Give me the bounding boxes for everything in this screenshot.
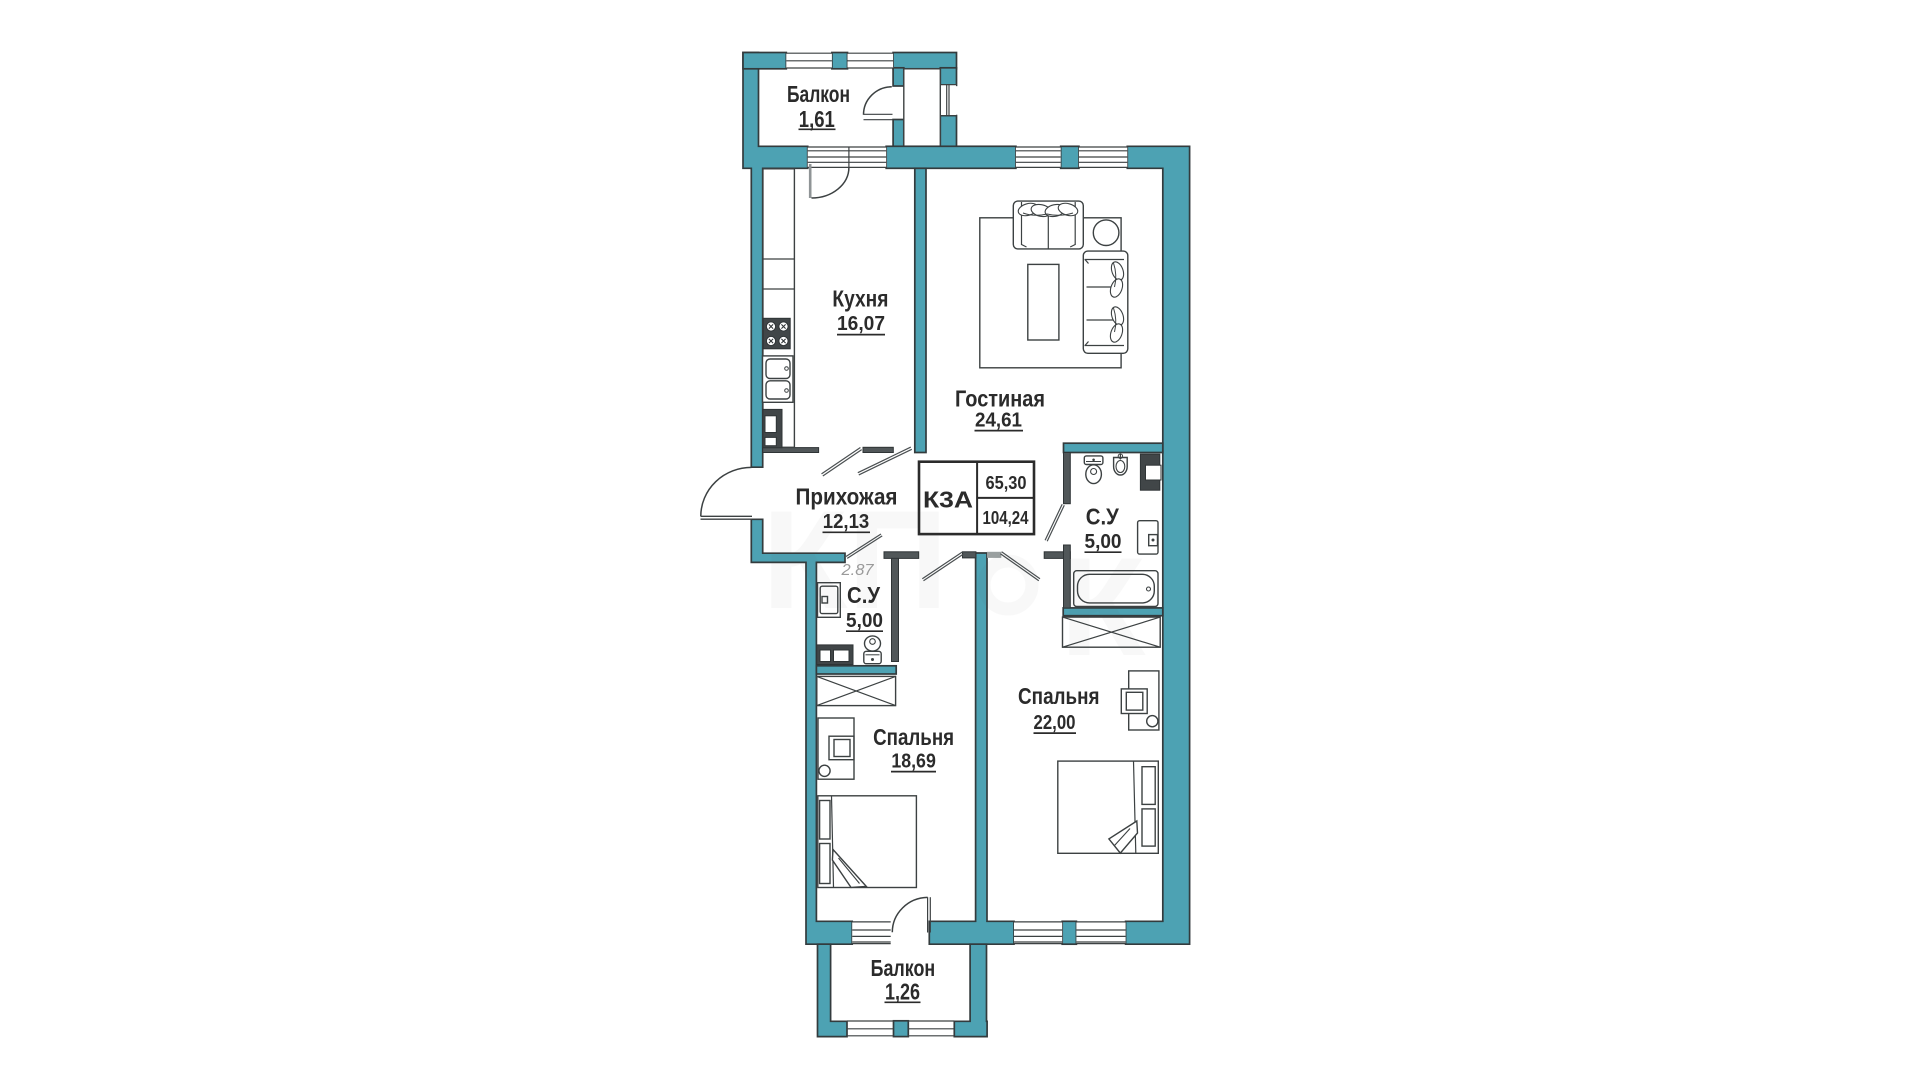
svg-text:К3А: К3А: [923, 486, 973, 512]
svg-text:104,24: 104,24: [983, 507, 1030, 528]
svg-text:1,26: 1,26: [885, 979, 920, 1005]
svg-text:22,00: 22,00: [1034, 711, 1076, 734]
svg-text:24,61: 24,61: [975, 408, 1022, 431]
svg-text:5,00: 5,00: [1085, 530, 1122, 553]
svg-text:Спальня: Спальня: [873, 724, 954, 750]
svg-text:Балкон: Балкон: [871, 955, 936, 981]
svg-text:Прихожая: Прихожая: [796, 483, 898, 509]
svg-text:2.87: 2.87: [840, 562, 874, 579]
svg-text:5,00: 5,00: [846, 609, 883, 632]
svg-text:18,69: 18,69: [891, 749, 936, 772]
svg-text:16,07: 16,07: [837, 312, 885, 335]
svg-text:С.У: С.У: [1086, 504, 1120, 530]
svg-text:12,13: 12,13: [823, 510, 870, 533]
svg-text:Балкон: Балкон: [787, 81, 850, 107]
svg-text:Спальня: Спальня: [1018, 683, 1100, 709]
svg-text:Кухня: Кухня: [832, 285, 888, 311]
svg-text:65,30: 65,30: [986, 472, 1027, 493]
svg-text:С.У: С.У: [847, 582, 881, 608]
svg-text:1,61: 1,61: [799, 106, 835, 132]
